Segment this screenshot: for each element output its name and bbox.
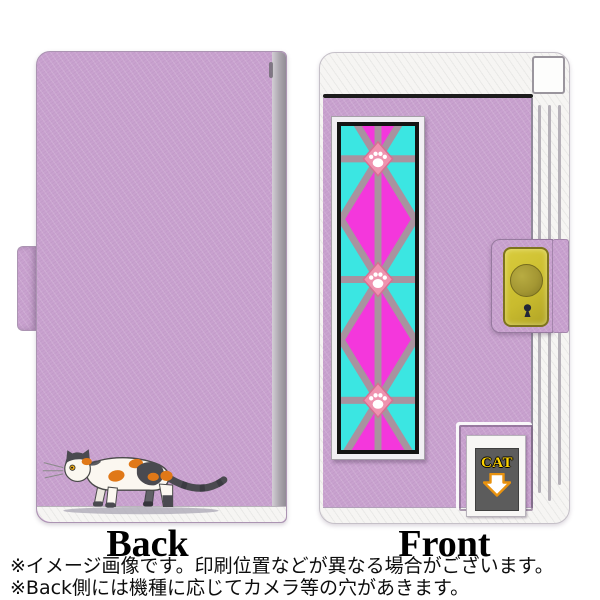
arrow-down-icon	[483, 473, 511, 497]
cat-shadow	[63, 507, 218, 514]
clasp-strap-edge	[552, 239, 569, 333]
top-trim-line	[323, 94, 533, 98]
stained-glass-panel	[331, 116, 425, 460]
calico-cat-illustration	[53, 448, 233, 516]
disclaimer-line-1: ※イメージ画像です。印刷位置などが異なる場合がございます。	[10, 556, 598, 578]
disclaimer-notes: ※イメージ画像です。印刷位置などが異なる場合がございます。 ※Back側には機種…	[10, 556, 598, 599]
clasp-button	[510, 264, 543, 297]
case-front-view: CAT	[319, 52, 570, 524]
cat-tail	[166, 476, 224, 488]
keyhole-icon	[523, 304, 532, 318]
disclaimer-line-2: ※Back側には機種に応じてカメラ等の穴があきます。	[10, 578, 598, 600]
spine-edge	[272, 52, 286, 507]
sign-text: CAT	[476, 455, 518, 472]
case-back-view	[36, 51, 287, 523]
back-cover	[36, 51, 287, 523]
spine-notch	[269, 62, 273, 78]
product-image: CAT Back Front ※イメージ画像です。印刷位置などが異なる場合がござ…	[0, 0, 600, 600]
clasp-plate	[503, 247, 549, 327]
clasp-strap-tab	[17, 246, 38, 331]
spine-top-tab	[532, 56, 565, 94]
cat-whiskers	[43, 463, 63, 478]
cat-door-sign: CAT	[466, 435, 526, 517]
